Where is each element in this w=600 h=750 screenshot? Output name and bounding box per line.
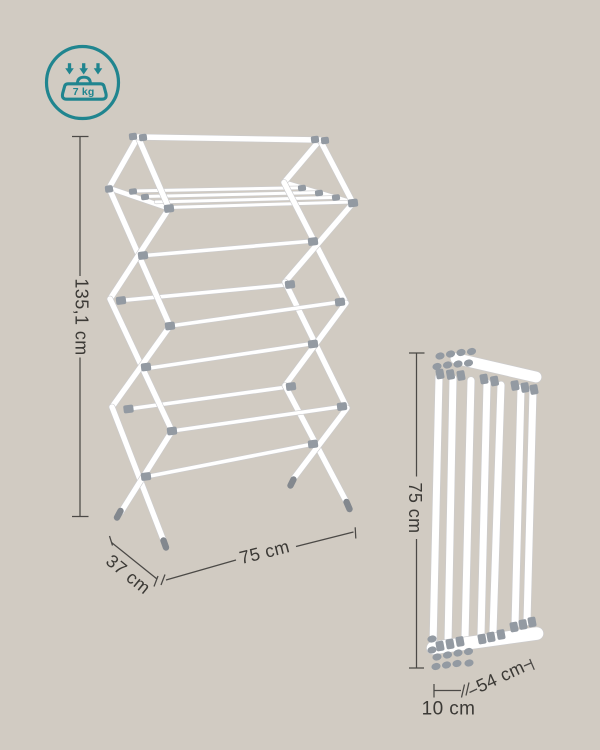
- svg-text:135,1 cm: 135,1 cm: [72, 278, 92, 355]
- svg-text:75 cm: 75 cm: [405, 482, 425, 533]
- svg-text:7 kg: 7 kg: [73, 86, 95, 98]
- svg-text:10 cm: 10 cm: [422, 699, 476, 720]
